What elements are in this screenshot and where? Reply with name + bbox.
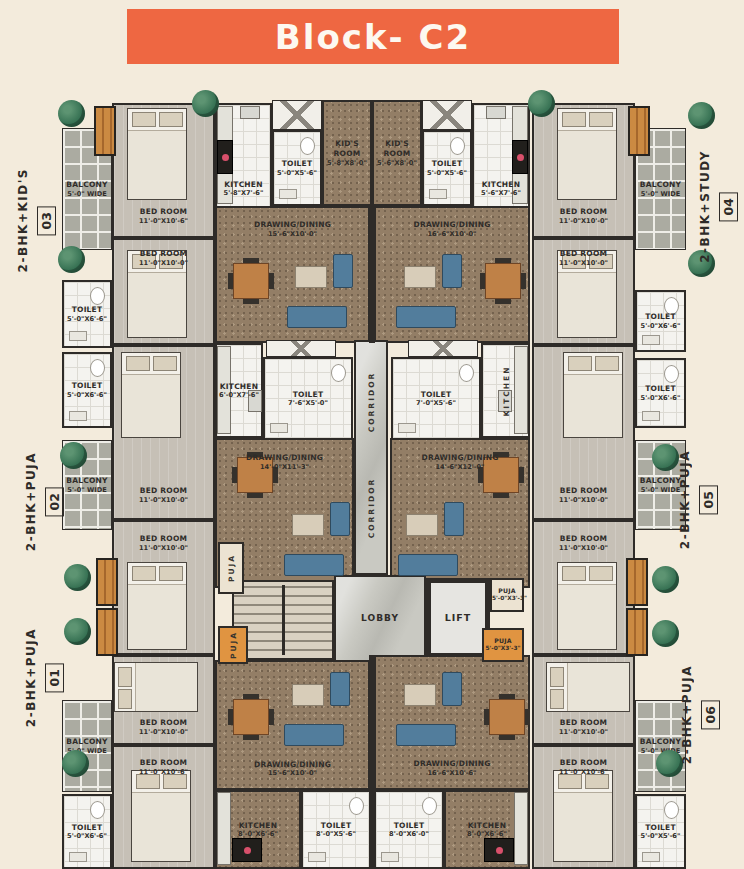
toilet-unit06-inner: TOILET8'-0"X6'-0" [374,790,444,869]
unit-type-label: 2-BHK+PUJA [680,665,694,764]
wardrobe-icon [96,608,118,656]
floor-plan: Block- C2 2-BHK+KID'S 03 2-BHK+PUJA 02 2… [0,0,744,869]
stair-rail [282,585,285,655]
stove-icon [512,140,528,174]
unit-number-badge: 06 [701,700,720,729]
unit-number-badge: 03 [37,206,56,235]
bed-icon [114,662,198,712]
sofa-icon [280,492,350,578]
sofa-icon [394,492,464,578]
unit-label-01: 2-BHK+PUJA 01 [24,628,64,727]
wardrobe-icon [94,106,116,156]
unit-label-04: 2-BHK+STUDY 04 [698,150,738,263]
sink-icon [240,106,260,119]
toilet-unit03-inner: TOILET5'-0"X5'-6" [272,130,322,206]
tree-icon [652,620,679,647]
unit-type-label: 2-BHK+PUJA [24,628,38,727]
toilet-unit02-inner: TOILET7'-6"X5'-0" [263,357,353,440]
lobby: LOBBY [334,575,426,663]
corridor: CORRIDOR CORRIDOR [354,340,388,575]
duct-shaft [266,340,336,357]
dining-table-icon [478,688,534,744]
bed-icon [563,352,623,438]
page-title: Block- C2 [127,9,619,64]
dining-table-icon [474,252,530,308]
duct-shaft [422,100,472,130]
tree-icon [652,566,679,593]
toilet-unit04-outer: TOILET5'-0"X6'-6" [635,290,686,352]
wall [369,655,375,790]
kids-room-unit03: KID'S ROOM5'-8"X8'-0" [322,100,372,206]
dining-table-icon [222,688,278,744]
tree-icon [688,102,715,129]
tree-icon [60,442,87,469]
tree-icon [652,444,679,471]
bed-icon [557,562,617,650]
unit-label-02: 2-BHK+PUJA 02 [24,452,64,551]
wall [369,790,375,869]
bed-icon [553,770,613,862]
bed-icon [131,770,191,862]
unit-type-label: 2-BHK+KID'S [16,168,30,272]
toilet-unit01-inner: TOILET8'-0"X5'-6" [301,790,371,869]
kids-room-unit04: KID'S ROOM5'-6"X8'-0" [372,100,422,206]
puja-unit06: PUJA5'-0"X3'-3" [482,628,524,662]
puja-unit01: PUJA [218,626,248,664]
wardrobe-icon [628,106,650,156]
sofa-icon [280,662,350,748]
sofa-icon [392,662,462,748]
toilet-unit04-inner: TOILET5'-0"X5'-6" [422,130,472,206]
bed-icon [546,662,630,712]
tree-icon [64,618,91,645]
sofa-icon [283,244,353,330]
unit-number-badge: 01 [45,663,64,692]
wall [369,206,375,343]
puja-unit02: PUJA [218,542,244,594]
sink-icon [486,106,506,119]
puja-unit05: PUJA5'-0"X3'-3" [490,578,524,612]
balcony-unit01: BALCONY5'-0" WIDE [62,700,112,792]
tree-icon [528,90,555,117]
unit-label-03: 2-BHK+KID'S 03 [16,168,56,272]
balcony-unit06: BALCONY5'-0" WIDE [635,700,686,792]
toilet-unit06-outer: TOILET5'-0"X5'-6" [635,794,686,869]
tree-icon [192,90,219,117]
toilet-unit05-outer: TOILET5'-0"X6'-6" [635,358,686,428]
stove-icon [484,838,514,862]
wardrobe-icon [96,558,118,606]
unit-number-badge: 05 [699,485,718,514]
bed-icon [557,108,617,200]
bed-icon [121,352,181,438]
unit-type-label: 2-BHK+PUJA [24,452,38,551]
stove-icon [232,838,262,862]
duct-shaft [408,340,478,357]
tree-icon [62,750,89,777]
toilet-unit01-outer: TOILET5'-0"X6'-6" [62,794,112,869]
tree-icon [58,100,85,127]
toilet-unit05-inner: TOILET7'-0"X5'-6" [391,357,481,440]
tree-icon [64,564,91,591]
kitchen-counter [514,346,528,434]
unit-label-05: 2-BHK+PUJA 05 [678,450,718,549]
wardrobe-icon [626,608,648,656]
unit-number-badge: 02 [45,487,64,516]
bed-icon [127,562,187,650]
wardrobe-icon [626,558,648,606]
toilet-unit03-outer: TOILET5'-0"X6'-6" [62,280,112,348]
tree-icon [58,246,85,273]
duct-shaft [272,100,322,130]
unit-label-06: 2-BHK+PUJA 06 [680,665,720,764]
unit-number-badge: 04 [719,192,738,221]
unit-type-label: 2-BHK+STUDY [698,150,712,263]
tree-icon [656,750,683,777]
bed-icon [127,108,187,200]
toilet-unit02-outer: TOILET5'-0"X6'-6" [62,352,112,428]
unit-type-label: 2-BHK+PUJA [678,450,692,549]
sofa-icon [392,244,462,330]
lift: LIFT [426,578,490,658]
stove-icon [217,140,233,174]
dining-table-icon [222,252,278,308]
